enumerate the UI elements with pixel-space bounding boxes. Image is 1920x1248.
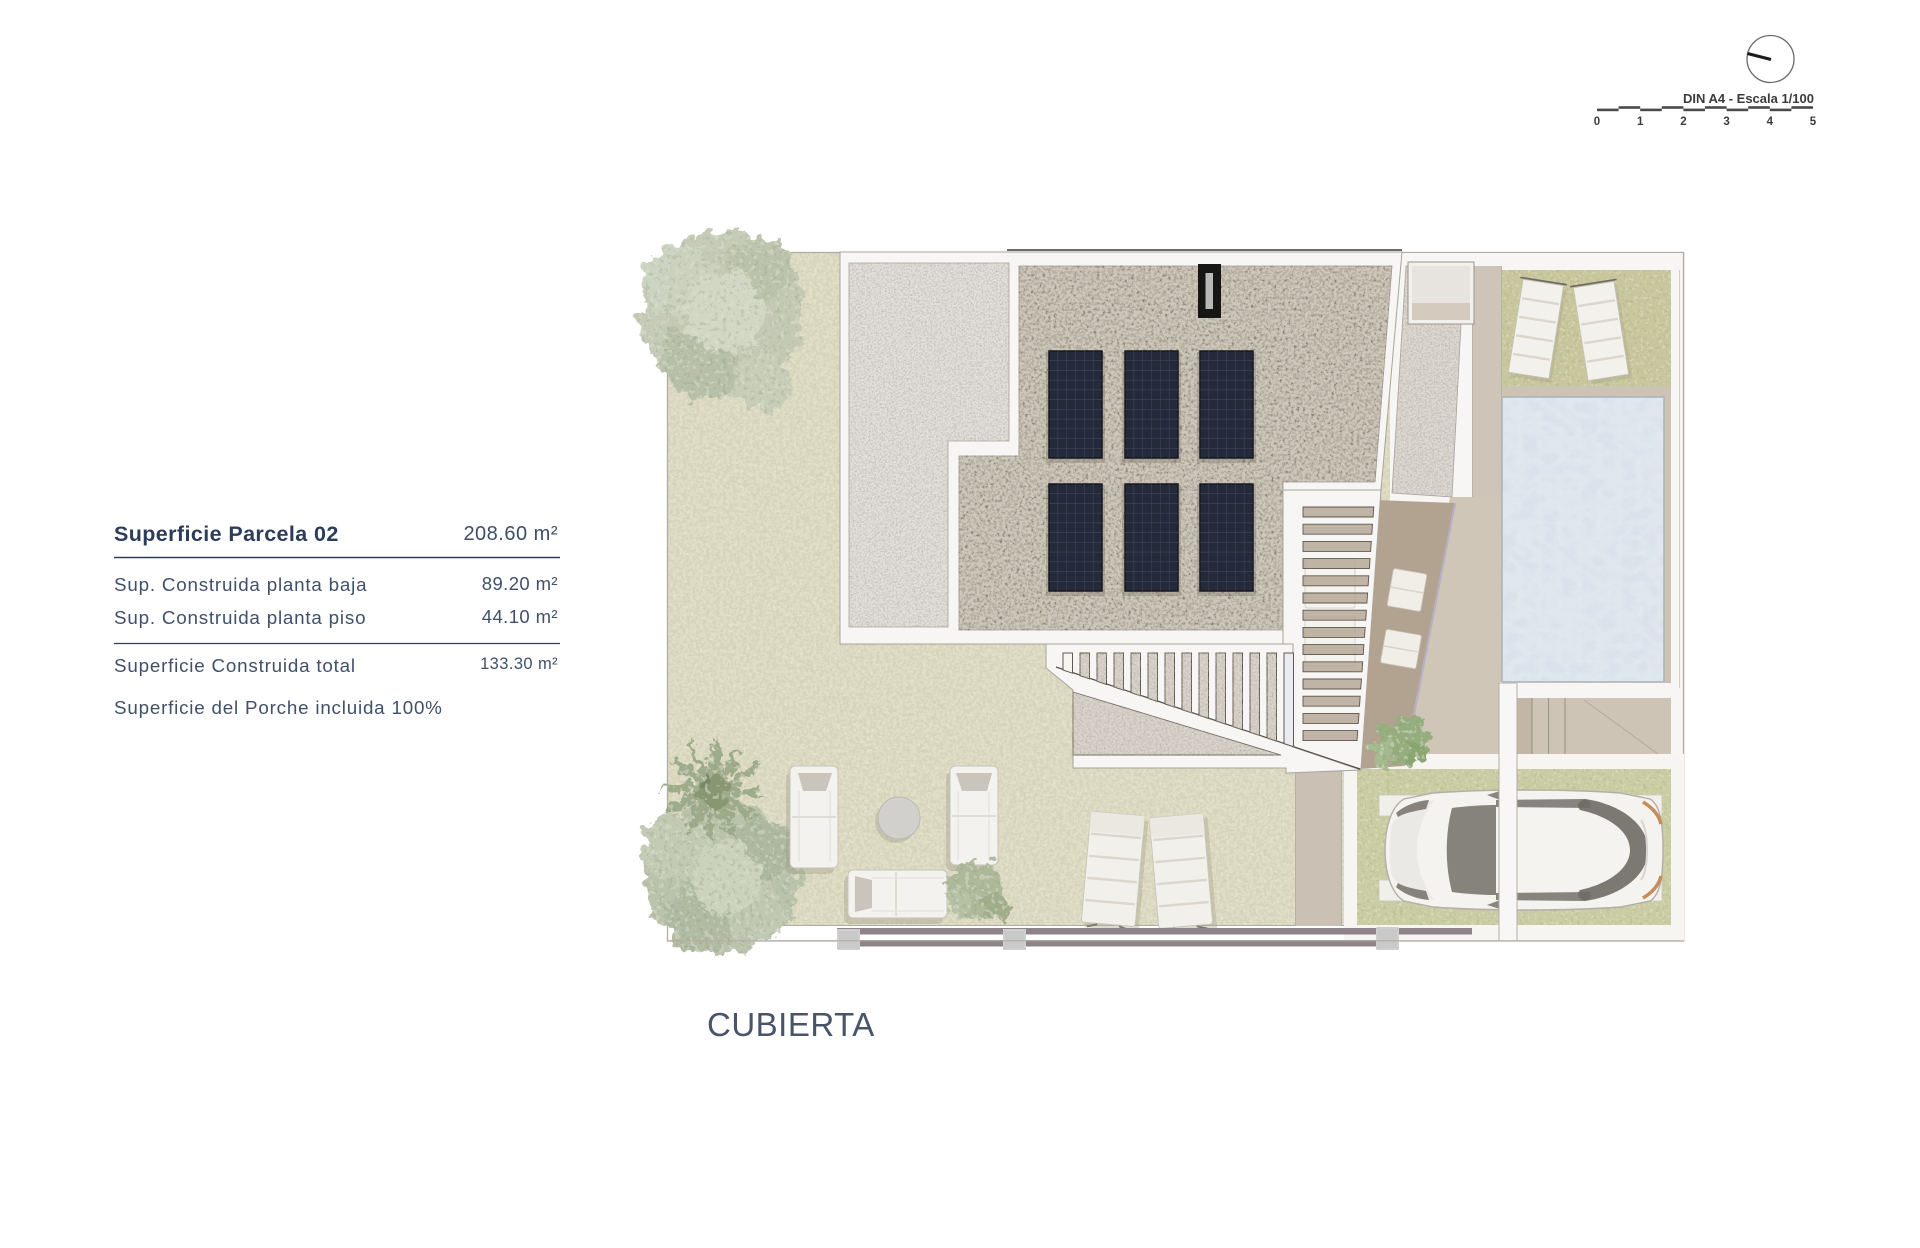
svg-text:2: 2 — [1680, 116, 1686, 128]
svg-text:Sup. Construida planta baja: Sup. Construida planta baja — [114, 574, 367, 595]
svg-text:5: 5 — [1810, 116, 1817, 128]
svg-text:DIN A4 - Escala 1/100: DIN A4 - Escala 1/100 — [1683, 91, 1814, 106]
svg-text:Superficie Construida total: Superficie Construida total — [114, 655, 356, 676]
svg-text:133.30 m²: 133.30 m² — [480, 655, 558, 673]
svg-text:1: 1 — [1637, 116, 1644, 128]
svg-text:Superficie del Porche incluida: Superficie del Porche incluida 100% — [114, 697, 443, 718]
svg-text:Superficie Parcela 02: Superficie Parcela 02 — [114, 522, 339, 546]
svg-text:3: 3 — [1723, 116, 1729, 128]
svg-text:4: 4 — [1767, 116, 1774, 128]
svg-text:208.60 m²: 208.60 m² — [463, 523, 558, 545]
svg-text:89.20 m²: 89.20 m² — [482, 573, 558, 594]
svg-text:44.10 m²: 44.10 m² — [482, 606, 558, 627]
svg-text:0: 0 — [1594, 116, 1600, 128]
svg-text:CUBIERTA: CUBIERTA — [707, 1006, 875, 1043]
svg-text:Sup. Construida planta piso: Sup. Construida planta piso — [114, 607, 366, 628]
